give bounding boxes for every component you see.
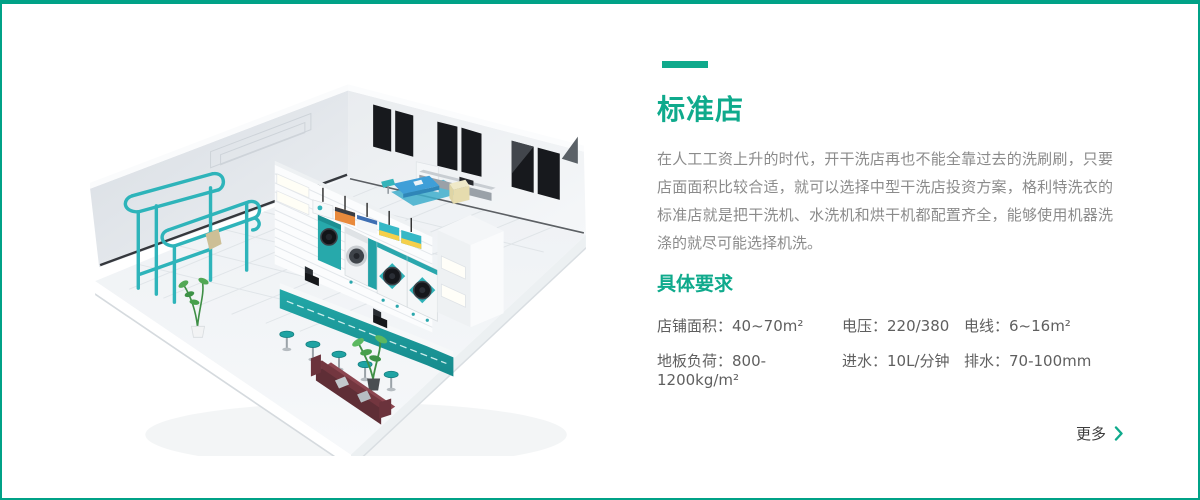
more-link[interactable]: 更多: [1076, 423, 1124, 444]
page-title: 标准店: [657, 88, 744, 128]
spec-voltage: 电压：220/380: [842, 315, 964, 336]
spec-wire: 电线：6~16m²: [964, 315, 1194, 336]
accent-dash: [662, 61, 708, 68]
laundry-basket: [449, 180, 469, 204]
spec-shop-area: 店铺面积：40~70m²: [657, 315, 842, 336]
requirements-grid: 店铺面积：40~70m² 电压：220/380 电线：6~16m² 地板负荷：8…: [657, 315, 1194, 389]
spec-drainage: 排水：70-100mm: [964, 350, 1194, 389]
requirements-heading: 具体要求: [657, 269, 733, 296]
laundry-store-illustration: [60, 32, 622, 456]
chevron-right-icon: [1114, 426, 1124, 441]
more-link-label[interactable]: 更多: [1076, 423, 1106, 444]
display-column: [437, 215, 503, 327]
store-description: 在人工工资上升的时代，开干洗店再也不能全靠过去的洗刷刷，只要店面面积比较合适，就…: [657, 145, 1113, 257]
page: 标准店 在人工工资上升的时代，开干洗店再也不能全靠过去的洗刷刷，只要店面面积比较…: [0, 0, 1200, 500]
spec-water-inlet: 进水：10L/分钟: [842, 350, 964, 389]
spec-floor-load: 地板负荷：800-1200kg/m²: [657, 350, 842, 389]
